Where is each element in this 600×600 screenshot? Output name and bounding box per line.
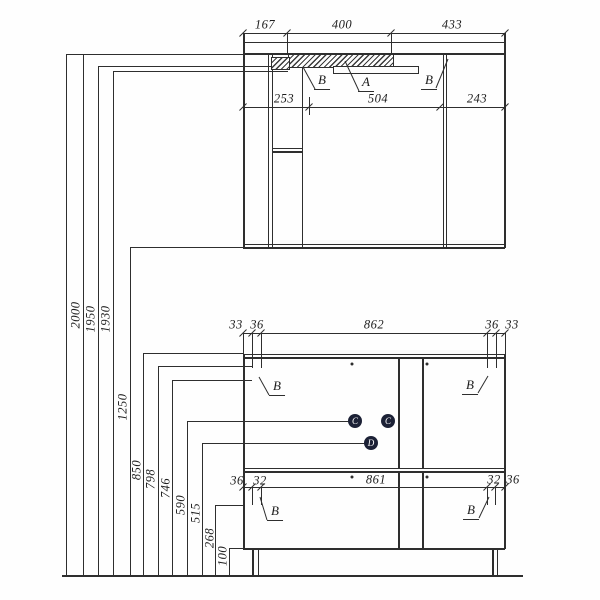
height-dim-label-590: 590 (174, 495, 189, 515)
drawer-dim-line (243, 487, 505, 488)
callout-a-rail: A (358, 74, 374, 92)
lamp-bar (333, 66, 419, 74)
callout-b-drawer-left: B (267, 503, 283, 521)
mirror-door-right-edge-b (446, 53, 447, 247)
top-width-dim-167: 167 (255, 18, 275, 33)
vanity-divider-right-upper (422, 358, 424, 468)
floor-line (62, 575, 523, 577)
knob-letter: D (368, 438, 375, 448)
mirror-left-panel-line-a (268, 53, 269, 247)
vanity-left (243, 354, 245, 549)
ext-line-268 (215, 505, 245, 506)
vanity-bottom (243, 548, 505, 550)
vanity-ext-a (243, 333, 244, 354)
side-shelf-line-a (272, 148, 302, 149)
ext-line-2000 (66, 54, 243, 55)
top-width-dim-433: 433 (442, 18, 462, 33)
height-dim-label-850: 850 (130, 460, 145, 480)
side-shelf-line-b (272, 151, 302, 153)
technical-drawing-canvas: 2000 1950 1930 1250 850 798 746 590 515 … (0, 0, 600, 600)
vanity-top-dim-line (243, 333, 505, 334)
height-dim-label-515: 515 (189, 503, 204, 523)
drawer-ext-d (495, 487, 496, 505)
leg-left-a (252, 548, 254, 575)
ext-line-798 (158, 366, 253, 367)
callout-b-mirror-right: B (421, 72, 437, 90)
ext-line-515 (202, 443, 365, 444)
mirror-cabinet-right (504, 33, 506, 248)
knob-callout-c1: C (348, 414, 362, 428)
mirror-left-panel-line-b (272, 53, 273, 247)
hinge-dot (426, 476, 429, 479)
vanity-ext-e (496, 333, 497, 368)
ext-line-1950 (98, 66, 272, 67)
height-dim-line-outer (66, 54, 67, 575)
ext-line-1930 (113, 71, 288, 72)
ext-line-590 (187, 421, 349, 422)
hinge-dot (426, 363, 429, 366)
drawer-dim-36-right: 36 (506, 473, 520, 488)
knob-letter: C (352, 416, 358, 426)
section-dim-253: 253 (274, 92, 294, 107)
knob-callout-c2: C (381, 414, 395, 428)
callout-b-mirror-left: B (314, 72, 330, 90)
ext-line-746 (172, 380, 252, 381)
countertop-top (243, 354, 505, 355)
height-dim-label-2000: 2000 (69, 302, 84, 329)
vanity-ext-c (261, 333, 262, 368)
vanity-divider-left-upper (398, 358, 400, 468)
mounting-rail-hatch-left (271, 57, 290, 70)
drawer-dim-861: 861 (366, 473, 386, 488)
knob-callout-d: D (364, 436, 378, 450)
height-dim-label-1930: 1930 (99, 306, 114, 333)
top-band-line (243, 42, 505, 43)
drawer-ext-c (487, 487, 488, 505)
callout-b-door-left: B (269, 378, 285, 396)
mirror-cabinet-bottom-b (243, 247, 505, 249)
vanity-right (504, 354, 506, 549)
vanity-ext-f (505, 333, 506, 354)
drawer-ext-b (261, 487, 262, 505)
ext-line-1250 (130, 247, 243, 248)
door-bottom-line-a (243, 468, 505, 469)
callout-b-drawer-right: B (463, 502, 479, 520)
hinge-dot (351, 363, 354, 366)
height-dim-label-1950: 1950 (84, 306, 99, 333)
callout-b-door-right: B (462, 377, 478, 395)
height-dim-label-798: 798 (144, 469, 159, 489)
vanity-ext-b (252, 333, 253, 368)
vanity-divider-left-lower (398, 471, 400, 548)
height-dim-label-746: 746 (159, 478, 174, 498)
vanity-ext-d (487, 333, 488, 368)
mirror-cabinet-left (243, 33, 245, 248)
section-dim-line (243, 107, 505, 108)
ext-line-850 (143, 353, 243, 354)
top-ext-400 (391, 33, 392, 53)
section-dim-243: 243 (467, 92, 487, 107)
leg-right-b (497, 548, 498, 575)
leg-right-a (492, 548, 494, 575)
section-dim-504: 504 (368, 92, 388, 107)
drawer-ext-a (252, 487, 253, 505)
mirror-cabinet-bottom-a (243, 244, 505, 245)
height-dim-label-1250: 1250 (116, 394, 131, 421)
hinge-dot (351, 476, 354, 479)
top-dim-line (243, 33, 505, 34)
vanity-dim-862: 862 (364, 318, 384, 333)
leg-left-b (258, 548, 259, 575)
top-width-dim-400: 400 (332, 18, 352, 33)
mirror-door-right-edge-a (443, 53, 444, 247)
height-dim-label-100: 100 (216, 546, 231, 566)
countertop-bottom (243, 357, 505, 359)
vanity-divider-right-lower (422, 471, 424, 548)
mirror-door-left-edge (302, 53, 303, 247)
vanity-dim-33-left: 33 (229, 318, 243, 333)
top-ext-167 (287, 33, 288, 53)
leader-lines (0, 0, 600, 600)
knob-letter: C (385, 416, 391, 426)
